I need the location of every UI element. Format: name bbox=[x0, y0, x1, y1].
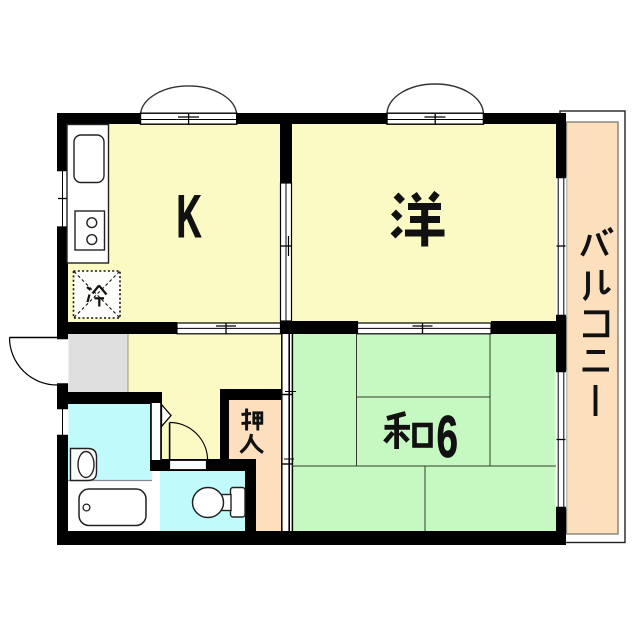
svg-text:K: K bbox=[177, 183, 202, 250]
svg-text:6: 6 bbox=[437, 404, 459, 470]
